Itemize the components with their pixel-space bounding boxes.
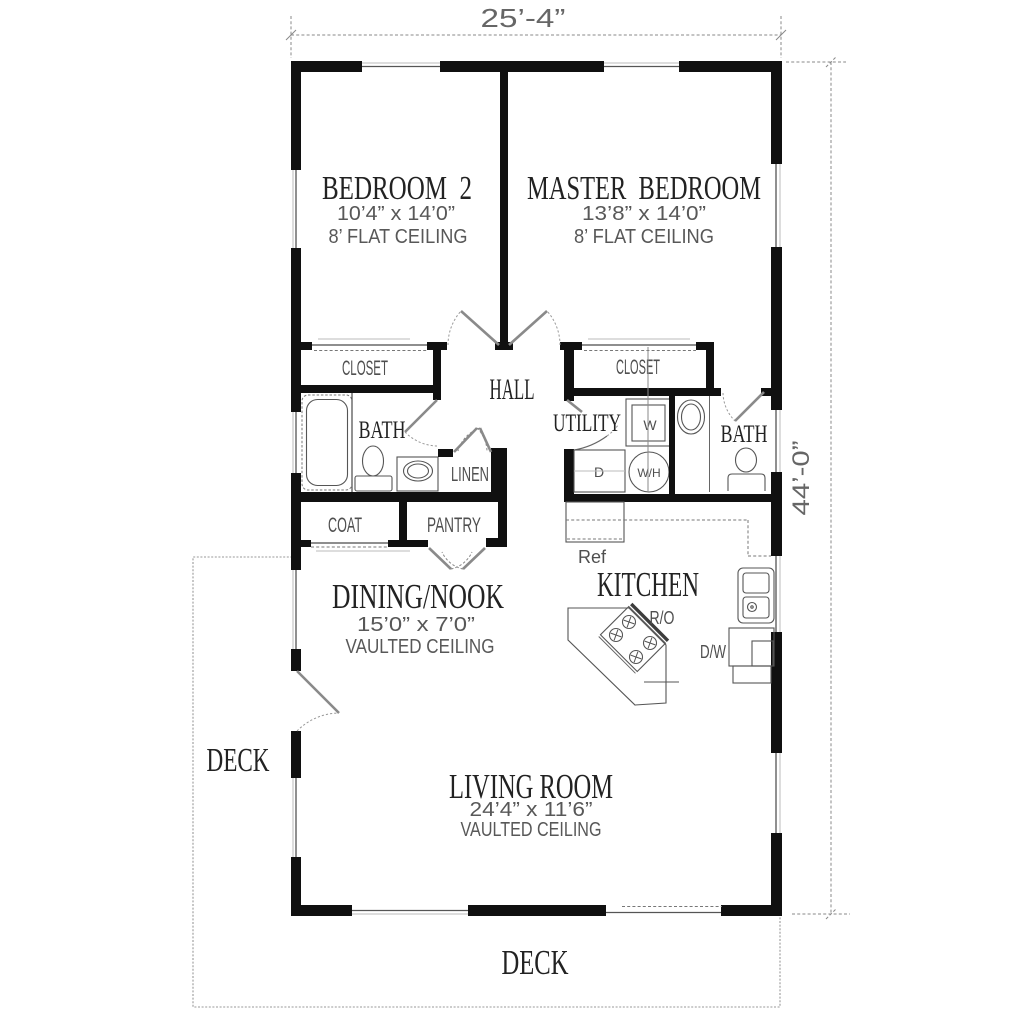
svg-text:24’4” x 11’6”: 24’4” x 11’6” (470, 799, 593, 821)
svg-text:MASTER BEDROOM: MASTER BEDROOM (527, 170, 761, 207)
svg-text:VAULTED CEILING: VAULTED CEILING (346, 636, 495, 658)
svg-text:COAT: COAT (328, 514, 362, 537)
svg-text:25’-4”: 25’-4” (481, 3, 566, 33)
svg-text:15’0” x 7’0”: 15’0” x 7’0” (357, 614, 475, 636)
svg-text:D/W: D/W (700, 642, 726, 662)
svg-text:R/O: R/O (650, 608, 675, 628)
svg-text:10’4” x 14’0”: 10’4” x 14’0” (337, 203, 455, 225)
svg-text:W/H: W/H (637, 466, 660, 480)
svg-text:DECK: DECK (207, 742, 270, 779)
svg-text:44’-0”: 44’-0” (788, 440, 815, 515)
svg-text:CLOSET: CLOSET (342, 357, 388, 380)
svg-text:8’ FLAT CEILING: 8’ FLAT CEILING (329, 226, 468, 248)
svg-text:W: W (643, 417, 657, 433)
svg-text:Ref: Ref (578, 547, 607, 567)
svg-text:VAULTED CEILING: VAULTED CEILING (461, 819, 602, 841)
svg-text:DECK: DECK (502, 943, 569, 982)
svg-text:CLOSET: CLOSET (616, 356, 660, 379)
svg-text:KITCHEN: KITCHEN (597, 565, 699, 604)
svg-text:13’8” x 14’0”: 13’8” x 14’0” (582, 203, 706, 225)
svg-text:PANTRY: PANTRY (427, 514, 481, 537)
svg-text:BATH: BATH (721, 421, 768, 448)
svg-text:BEDROOM 2: BEDROOM 2 (322, 170, 472, 207)
svg-text:BATH: BATH (359, 417, 406, 444)
svg-text:DINING/NOOK: DINING/NOOK (332, 577, 504, 616)
svg-text:HALL: HALL (490, 373, 535, 406)
svg-text:LINEN: LINEN (451, 464, 489, 486)
svg-text:8’ FLAT CEILING: 8’ FLAT CEILING (574, 226, 714, 248)
svg-text:UTILITY: UTILITY (553, 410, 621, 437)
svg-text:D: D (594, 464, 604, 480)
